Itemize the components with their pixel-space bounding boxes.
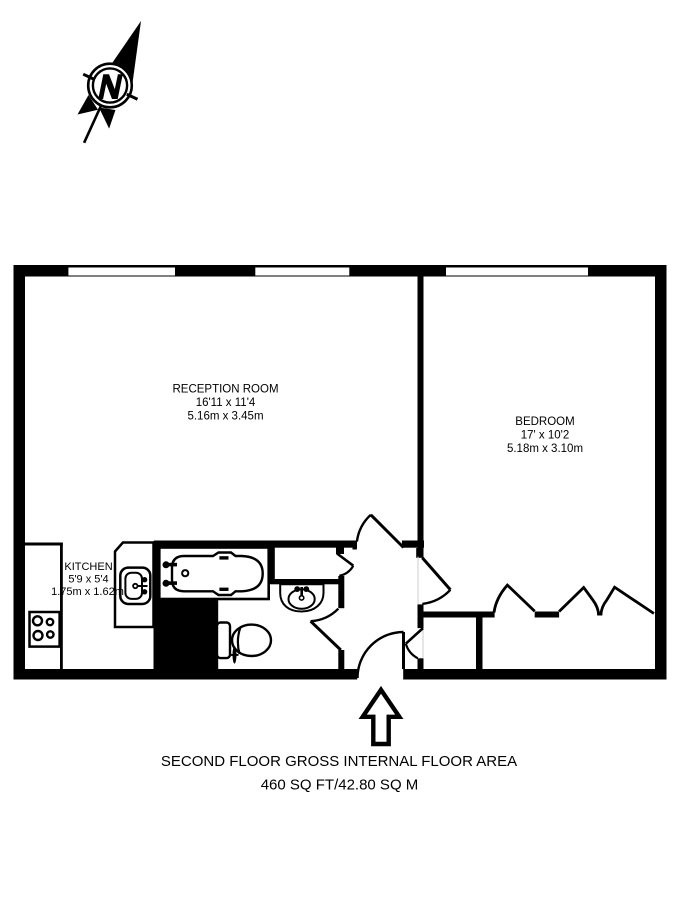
svg-text:17' x 10'2: 17' x 10'2 bbox=[521, 430, 570, 442]
svg-text:SECOND FLOOR GROSS INTERNAL FL: SECOND FLOOR GROSS INTERNAL FLOOR AREA bbox=[161, 753, 517, 770]
svg-text:KITCHEN: KITCHEN bbox=[64, 561, 112, 573]
svg-text:16'11 x 11'4: 16'11 x 11'4 bbox=[196, 397, 256, 409]
svg-text:5'9 x 5'4: 5'9 x 5'4 bbox=[68, 574, 108, 586]
svg-text:5.18m x 3.10m: 5.18m x 3.10m bbox=[507, 443, 583, 455]
svg-text:5.16m x 3.45m: 5.16m x 3.45m bbox=[187, 411, 263, 423]
svg-text:460 SQ FT/42.80 SQ M: 460 SQ FT/42.80 SQ M bbox=[261, 777, 419, 794]
svg-text:1.75m x 1.62m: 1.75m x 1.62m bbox=[51, 586, 124, 598]
svg-text:RECEPTION ROOM: RECEPTION ROOM bbox=[172, 384, 278, 396]
svg-text:BEDROOM: BEDROOM bbox=[515, 416, 574, 428]
